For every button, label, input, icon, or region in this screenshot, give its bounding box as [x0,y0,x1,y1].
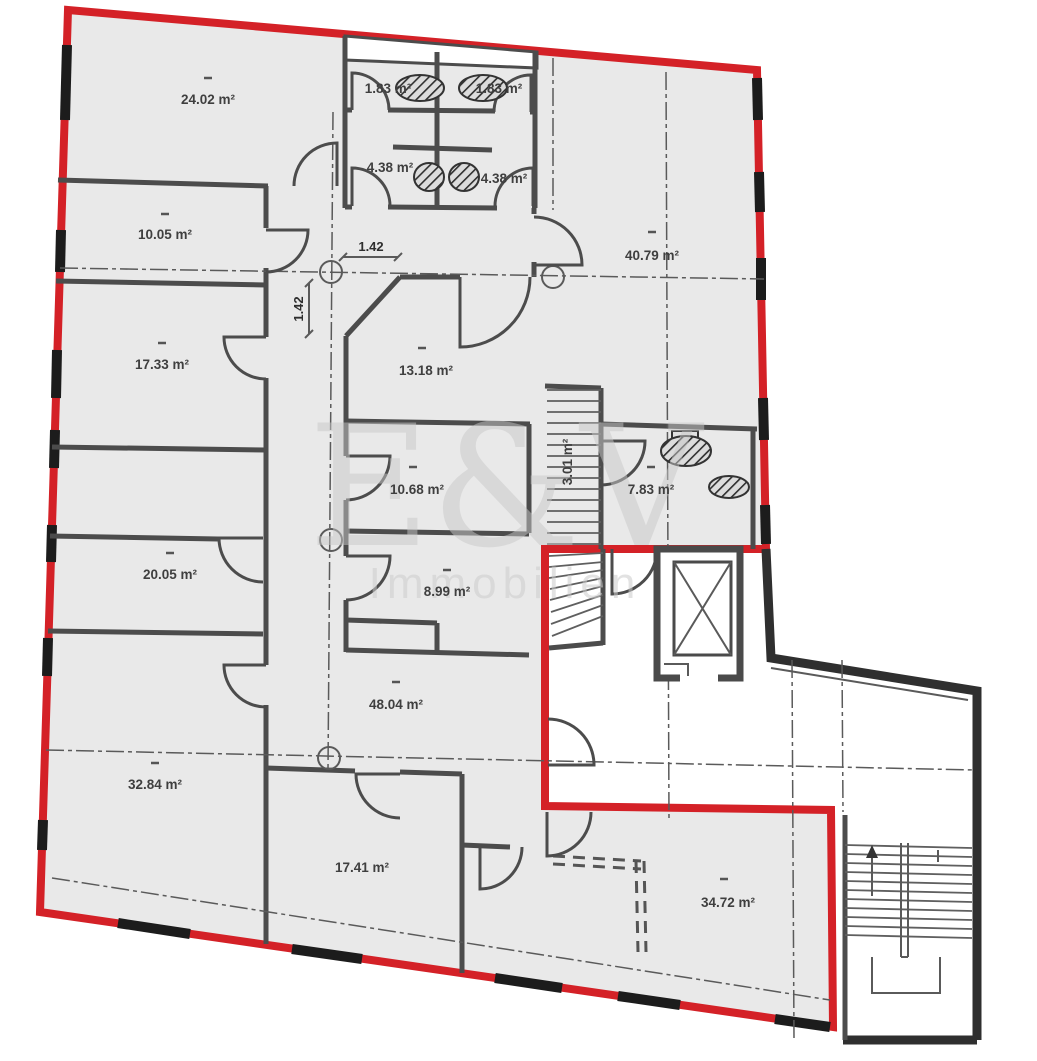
area-label-17-41: 17.41 m² [335,860,390,875]
area-label-17-33: 17.33 m² [135,357,190,372]
area-label-1-83-left: 1.83 m² [365,81,412,96]
area-label-34-72: 34.72 m² [701,895,756,910]
area-label-32-84: 32.84 m² [128,777,183,792]
dim-label-horizontal: 1.42 [358,239,383,254]
dim-label-vertical: 1.42 [291,296,306,321]
area-label-10-05: 10.05 m² [138,227,193,242]
area-label-3-01: 3.01 m² [560,438,575,485]
sink-icon [414,163,444,191]
area-label-24-02: 24.02 m² [181,92,236,107]
floor-plan-page: 1.42 1.42 E&V Immobilien 24.02 m² 10.05 … [0,0,1037,1061]
area-label-10-68: 10.68 m² [390,482,445,497]
floor-plan-svg: 1.42 1.42 E&V Immobilien 24.02 m² 10.05 … [0,0,1037,1061]
area-label-1-83-right: 1.83 m² [476,81,523,96]
sink-icon [449,163,479,191]
sink-icon [709,476,749,498]
area-label-20-05: 20.05 m² [143,567,198,582]
area-label-8-99: 8.99 m² [424,584,471,599]
area-label-13-18: 13.18 m² [399,363,454,378]
area-label-40-79: 40.79 m² [625,248,680,263]
watermark-subtitle: Immobilien [369,559,642,608]
area-label-4-38-left: 4.38 m² [367,160,414,175]
area-label-48-04: 48.04 m² [369,697,424,712]
watermark: E&V Immobilien [308,389,704,608]
area-label-4-38-right: 4.38 m² [481,171,528,186]
area-label-7-83: 7.83 m² [628,482,675,497]
